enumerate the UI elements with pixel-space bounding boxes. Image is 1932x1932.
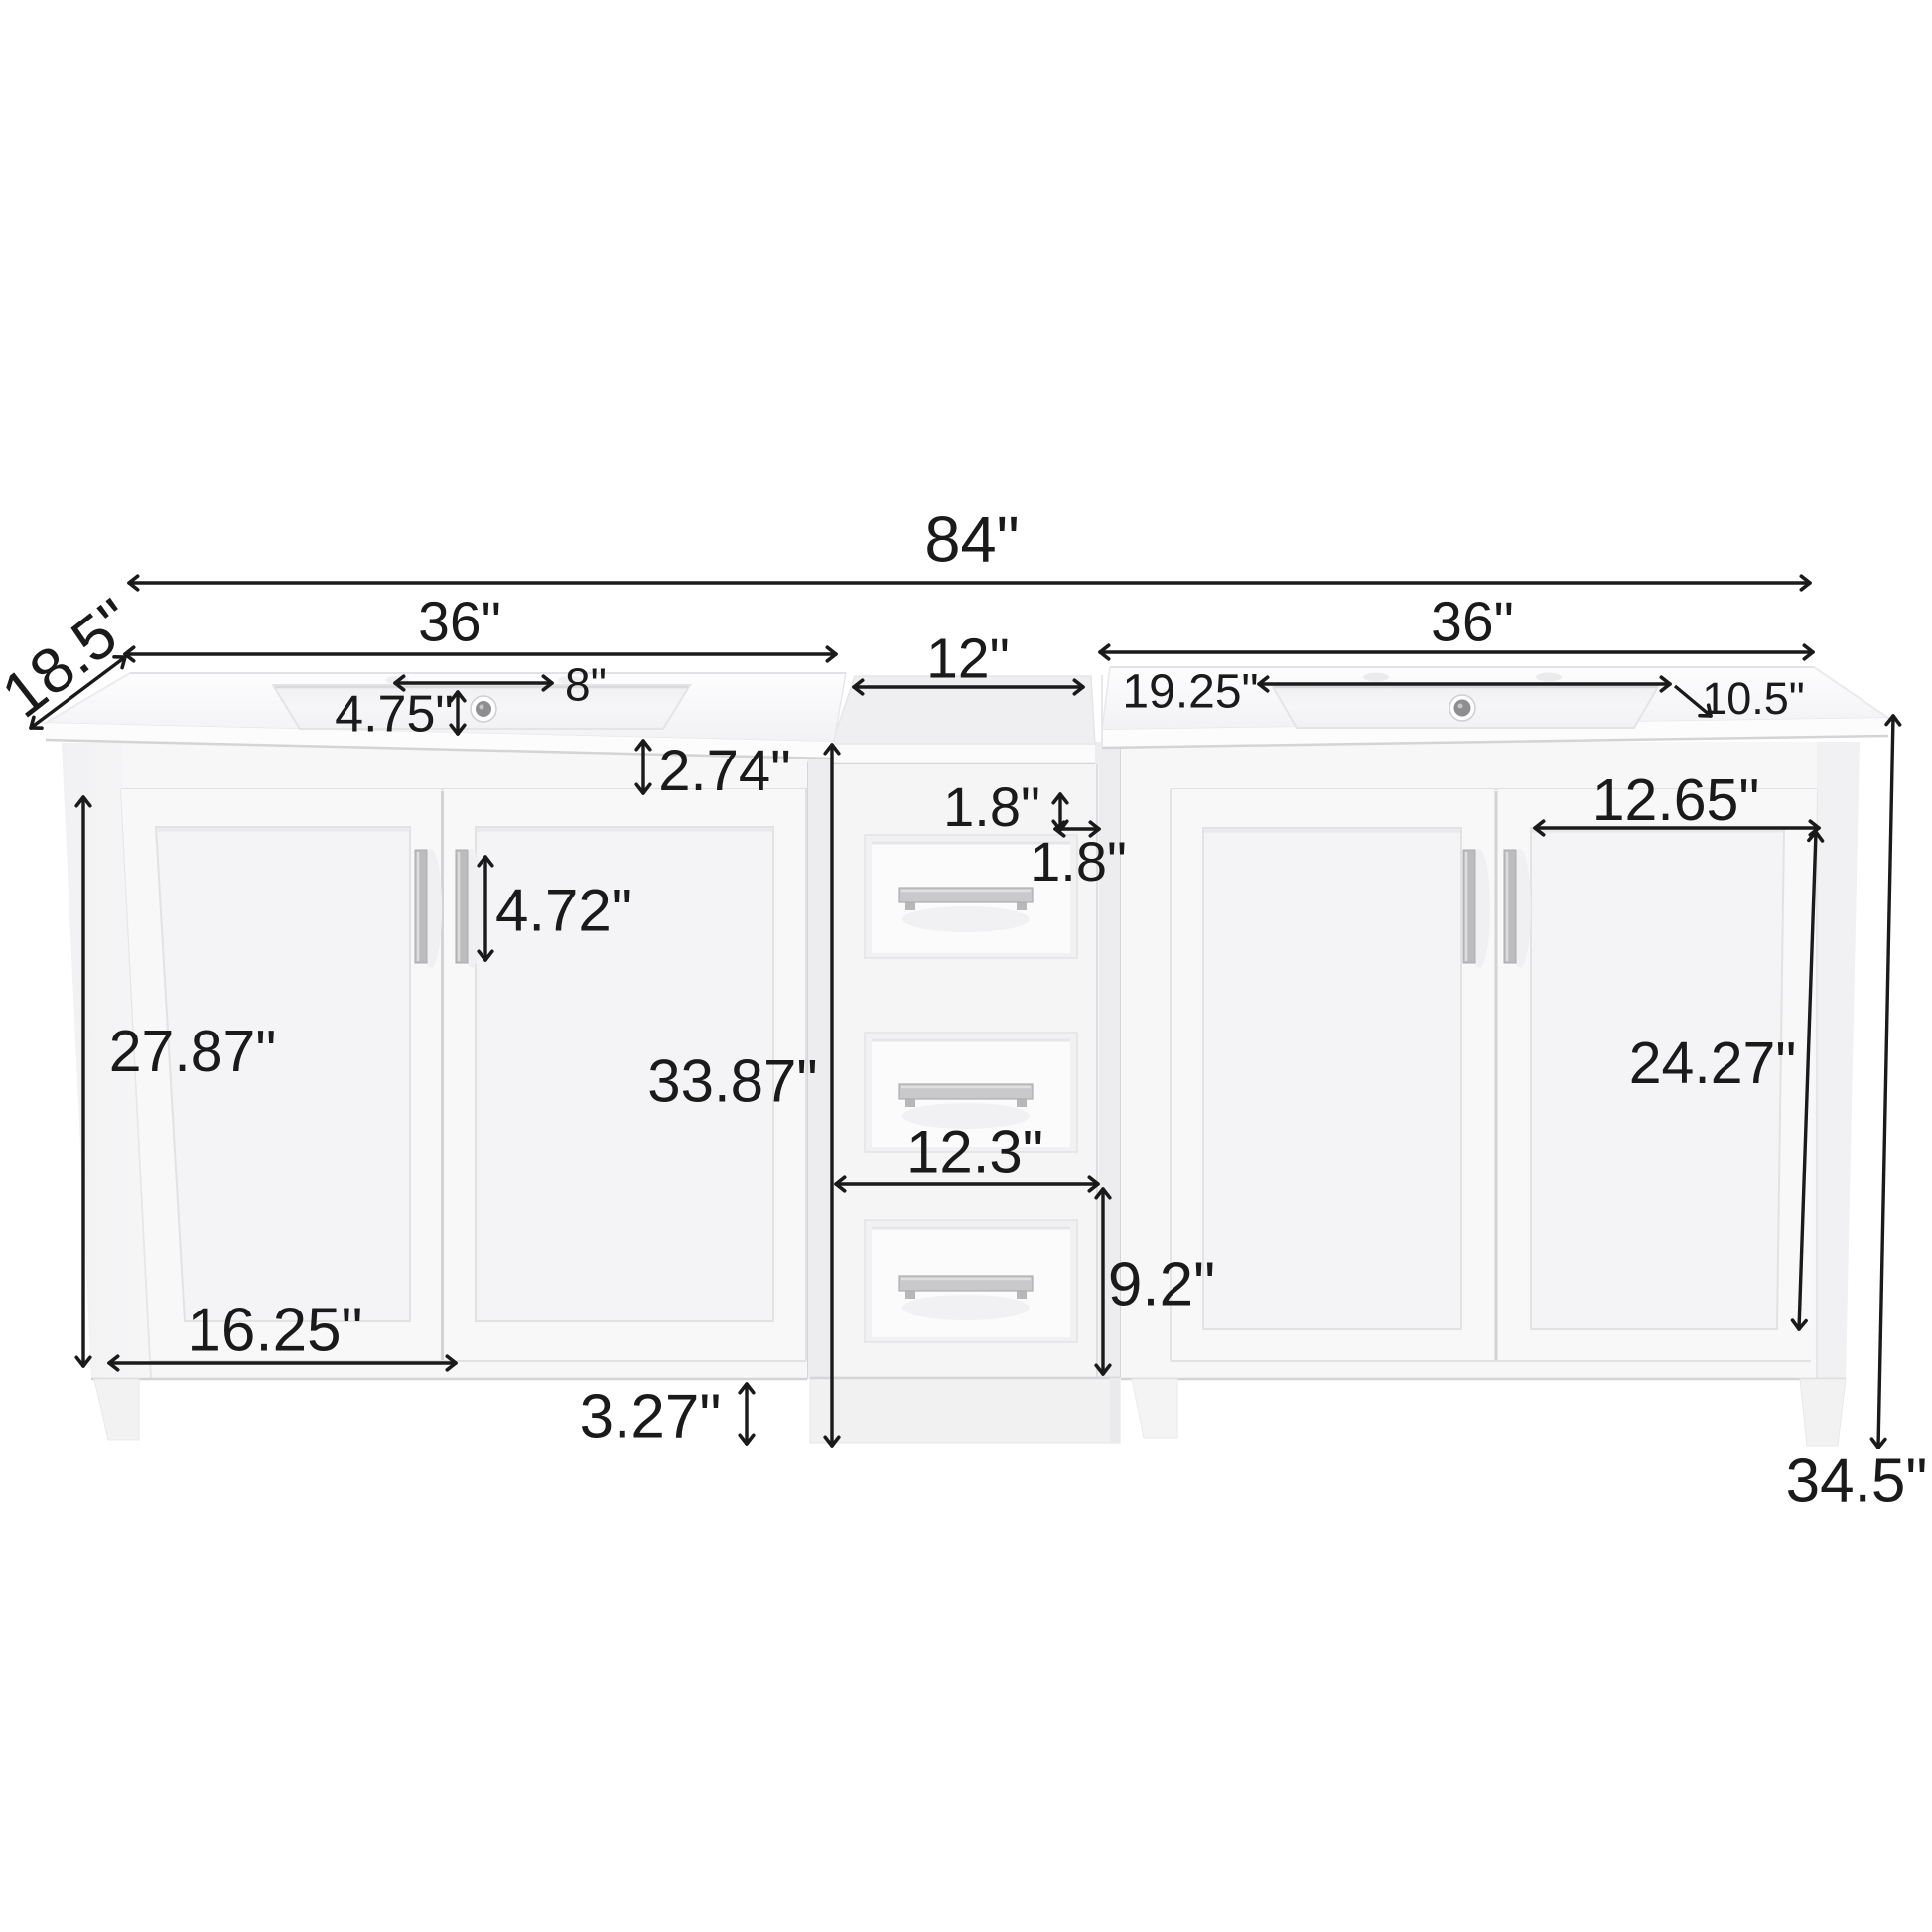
svg-text:36": 36"	[418, 591, 501, 654]
svg-text:4.75": 4.75"	[335, 686, 454, 744]
svg-text:10.5": 10.5"	[1702, 673, 1805, 724]
svg-text:84": 84"	[924, 502, 1019, 575]
svg-text:12.3": 12.3"	[906, 1119, 1043, 1185]
svg-text:36": 36"	[1431, 591, 1514, 654]
svg-text:1.8": 1.8"	[943, 775, 1040, 838]
svg-text:1.8": 1.8"	[1030, 830, 1127, 893]
svg-text:19.25": 19.25"	[1122, 665, 1258, 718]
svg-text:27.87": 27.87"	[109, 1019, 277, 1084]
svg-text:2.74": 2.74"	[658, 739, 790, 803]
svg-text:4.72": 4.72"	[495, 878, 632, 944]
svg-text:3.27": 3.27"	[580, 1382, 722, 1450]
svg-text:16.25": 16.25"	[187, 1296, 362, 1364]
svg-text:24.27": 24.27"	[1629, 1031, 1797, 1096]
svg-text:9.2": 9.2"	[1108, 1250, 1215, 1318]
svg-text:12.65": 12.65"	[1592, 767, 1760, 833]
svg-text:34.5": 34.5"	[1786, 1447, 1928, 1515]
svg-text:8": 8"	[565, 659, 607, 711]
svg-text:33.87": 33.87"	[647, 1048, 817, 1115]
svg-text:12": 12"	[926, 627, 1010, 691]
